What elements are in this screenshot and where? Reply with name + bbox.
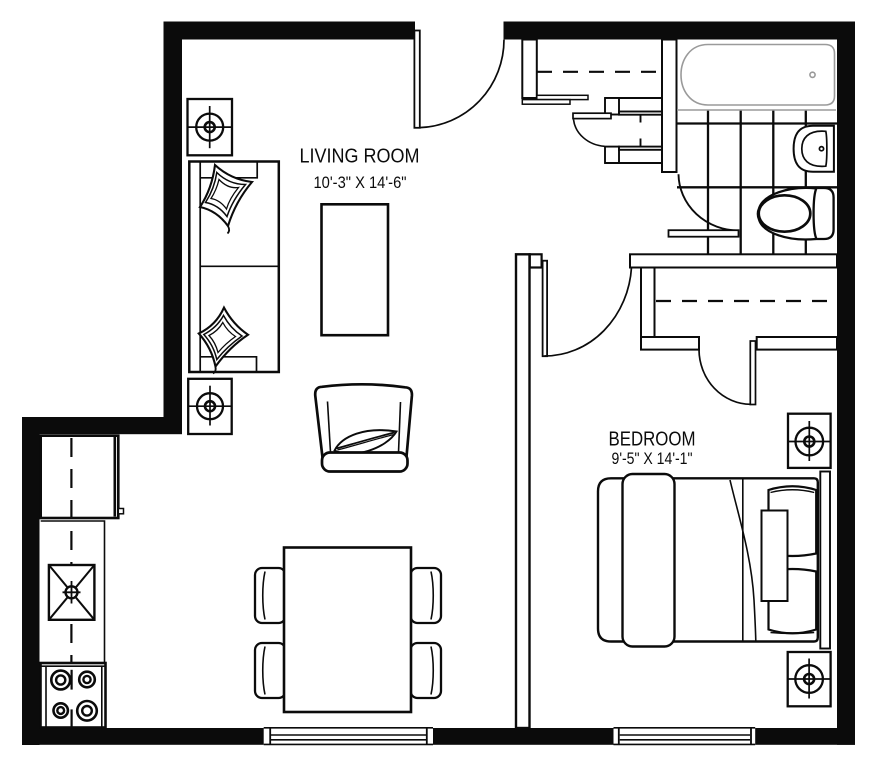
svg-text:10'-3" X 14'-6": 10'-3" X 14'-6" [314, 173, 407, 192]
svg-text:BEDROOM: BEDROOM [609, 428, 696, 451]
svg-text:9'-5" X 14'-1": 9'-5" X 14'-1" [612, 449, 693, 468]
svg-text:LIVING ROOM: LIVING ROOM [300, 145, 420, 168]
